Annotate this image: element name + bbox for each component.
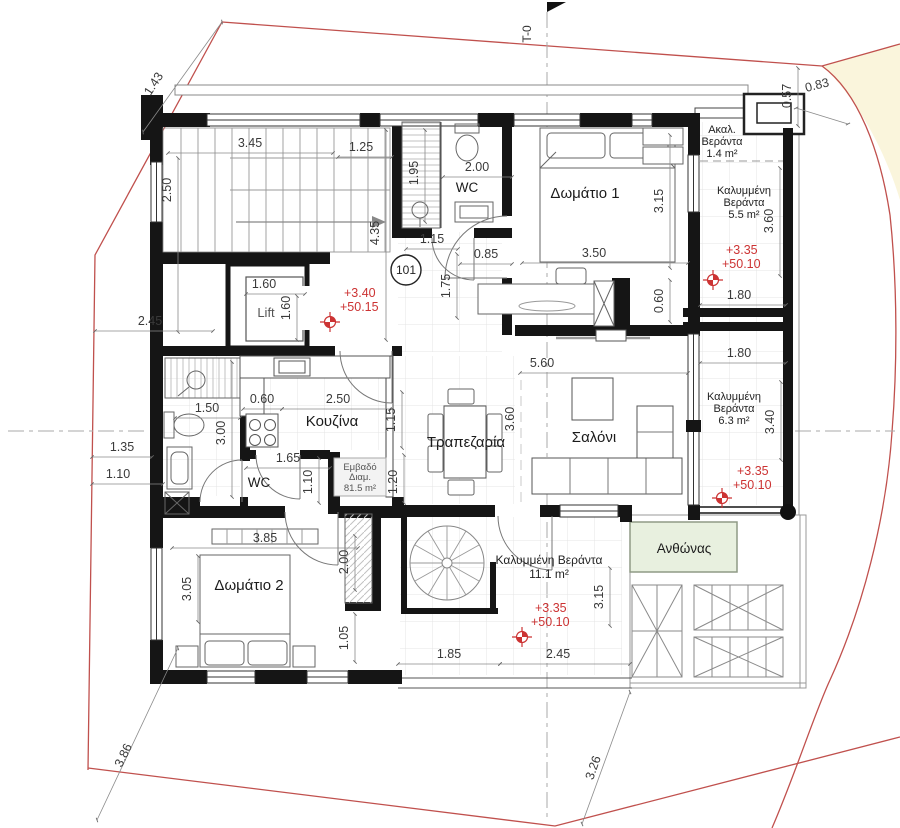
level-veranda-a-b: +50.10 [722, 257, 761, 271]
sofa-icon [532, 458, 682, 494]
apartment-number-badge: 101 [391, 255, 421, 285]
veranda-open-line2: Βεράντα [702, 136, 744, 148]
veranda-open-area: 1.4 m² [706, 148, 738, 160]
planter-label: Ανθώνας [657, 541, 712, 556]
kitchen-label: Κουζίνα [306, 413, 359, 430]
dim-wc2-depth: 1.10 [301, 470, 315, 494]
dim-left-c: 1.10 [106, 467, 130, 481]
coffee-table-icon [572, 378, 613, 420]
dim-veranda3-a: 1.85 [437, 647, 461, 661]
level-entry-a: +3.40 [344, 286, 376, 300]
dim-kitchen-c: 1.15 [384, 408, 398, 432]
area-box: Εμβαδό Διαμ. 81.5 m² [334, 458, 386, 496]
boundary-point-icon [780, 504, 796, 520]
nightstand-icon [293, 646, 315, 667]
dim-left-b: 1.35 [110, 440, 134, 454]
dim-entry-b: 0.85 [474, 247, 498, 261]
dim-site-b: 0.57 [780, 84, 794, 108]
section-flag-icon [547, 2, 566, 12]
dim-veranda1-depth: 3.60 [762, 209, 776, 233]
veranda-b-line1: Καλυμμένη [707, 391, 761, 403]
dim-veranda2-depth: 3.40 [763, 410, 777, 434]
dim-veranda3-depth: 3.15 [592, 585, 606, 609]
dim-closet: 2.00 [337, 550, 351, 574]
dim-veranda3-b: 2.45 [546, 647, 570, 661]
veranda-c-line1: Καλυμμένη Βεράντα [496, 553, 603, 567]
dim-bed1-depth: 3.15 [652, 189, 666, 213]
dim-entry-c: 1.75 [439, 274, 453, 298]
dim-bath-width: 1.50 [195, 401, 219, 415]
floor-plan-page: T-0 Ανθώνας [0, 0, 900, 828]
dim-site-a: 1.43 [141, 70, 166, 98]
dim-bed1-width: 3.50 [582, 246, 606, 260]
level-entry-b: +50.15 [340, 300, 379, 314]
bedroom2-label: Δωμάτιο 2 [214, 577, 283, 594]
veranda-c-area: 11.1 m² [529, 567, 569, 581]
dim-top-offset: 1.25 [349, 140, 373, 154]
dining-label: Τραπεζαρία [427, 434, 506, 451]
dim-bed2-depth: 3.05 [180, 577, 194, 601]
dim-veranda1-width: 1.80 [727, 288, 751, 302]
dim-bed1-side: 0.60 [652, 289, 666, 313]
dim-entry-a: 1.15 [420, 232, 444, 246]
dim-lift-width: 1.60 [252, 277, 276, 291]
site-area-fill [822, 44, 900, 200]
level-veranda-c-a: +3.35 [535, 601, 567, 615]
dim-bath-depth: 3.00 [214, 421, 228, 445]
dim-hall-length: 4.35 [368, 221, 382, 245]
veranda-open-line1: Ακαλ. [708, 124, 736, 136]
area-box-line2: Διαμ. [349, 472, 371, 483]
living-furniture [532, 330, 682, 494]
section-marker-label: T-0 [520, 25, 534, 43]
lift-label: Lift [257, 305, 275, 320]
wc-bottom-label: WC [248, 475, 271, 490]
apartment-number: 101 [396, 263, 416, 277]
veranda-edge [700, 504, 796, 520]
dim-hall-width: 1.20 [386, 470, 400, 494]
dim-living-width: 5.60 [530, 356, 554, 370]
dim-living-depth: 3.60 [503, 407, 517, 431]
dim-site-d: 3.86 [112, 741, 135, 769]
bedroom1-label: Δωμάτιο 1 [550, 185, 619, 202]
veranda-b-line2: Βεράντα [714, 403, 756, 415]
veranda-a-area: 5.5 m² [728, 209, 760, 221]
dim-veranda2-width: 1.80 [727, 346, 751, 360]
dim-site-e: 3.26 [583, 754, 604, 782]
dim-site-c: 0.83 [804, 75, 831, 94]
dim-wc1: 2.00 [465, 160, 489, 174]
dim-bed2-width: 3.85 [253, 531, 277, 545]
level-veranda-a-a: +3.35 [726, 243, 758, 257]
dim-lift-depth: 1.60 [279, 296, 293, 320]
stove-icon [246, 414, 278, 447]
level-veranda-c-b: +50.10 [531, 615, 570, 629]
wc-top-label: WC [456, 180, 479, 195]
desk-icon [478, 284, 600, 314]
dim-stair-depth: 2.50 [160, 178, 174, 202]
dim-shower: 1.95 [407, 161, 421, 185]
benchmark-icon [320, 312, 340, 332]
dim-bed2-side: 1.05 [337, 626, 351, 650]
dim-wc2-width: 1.65 [276, 451, 300, 465]
dim-left-a: 2.45 [138, 314, 162, 328]
veranda-a-line2: Βεράντα [724, 197, 766, 209]
floor-plan-drawing: T-0 Ανθώνας [0, 0, 900, 828]
skylight-panel-icon [632, 585, 783, 677]
living-label: Σαλόνι [572, 429, 616, 446]
level-veranda-b-b: +50.10 [733, 478, 772, 492]
veranda-a-line1: Καλυμμένη [717, 185, 771, 197]
chair-icon [556, 268, 586, 284]
planter-box: Ανθώνας [630, 522, 737, 572]
dim-stair-width: 3.45 [238, 136, 262, 150]
dim-kitchen-a: 0.60 [250, 392, 274, 406]
level-veranda-b-a: +3.35 [737, 464, 769, 478]
section-marker: T-0 [520, 2, 566, 43]
dim-kitchen-width: 2.50 [326, 392, 350, 406]
area-box-line3: 81.5 m² [344, 483, 376, 494]
chimney-block [744, 94, 804, 134]
nightstand-icon [176, 646, 198, 667]
veranda-b-area: 6.3 m² [718, 415, 750, 427]
